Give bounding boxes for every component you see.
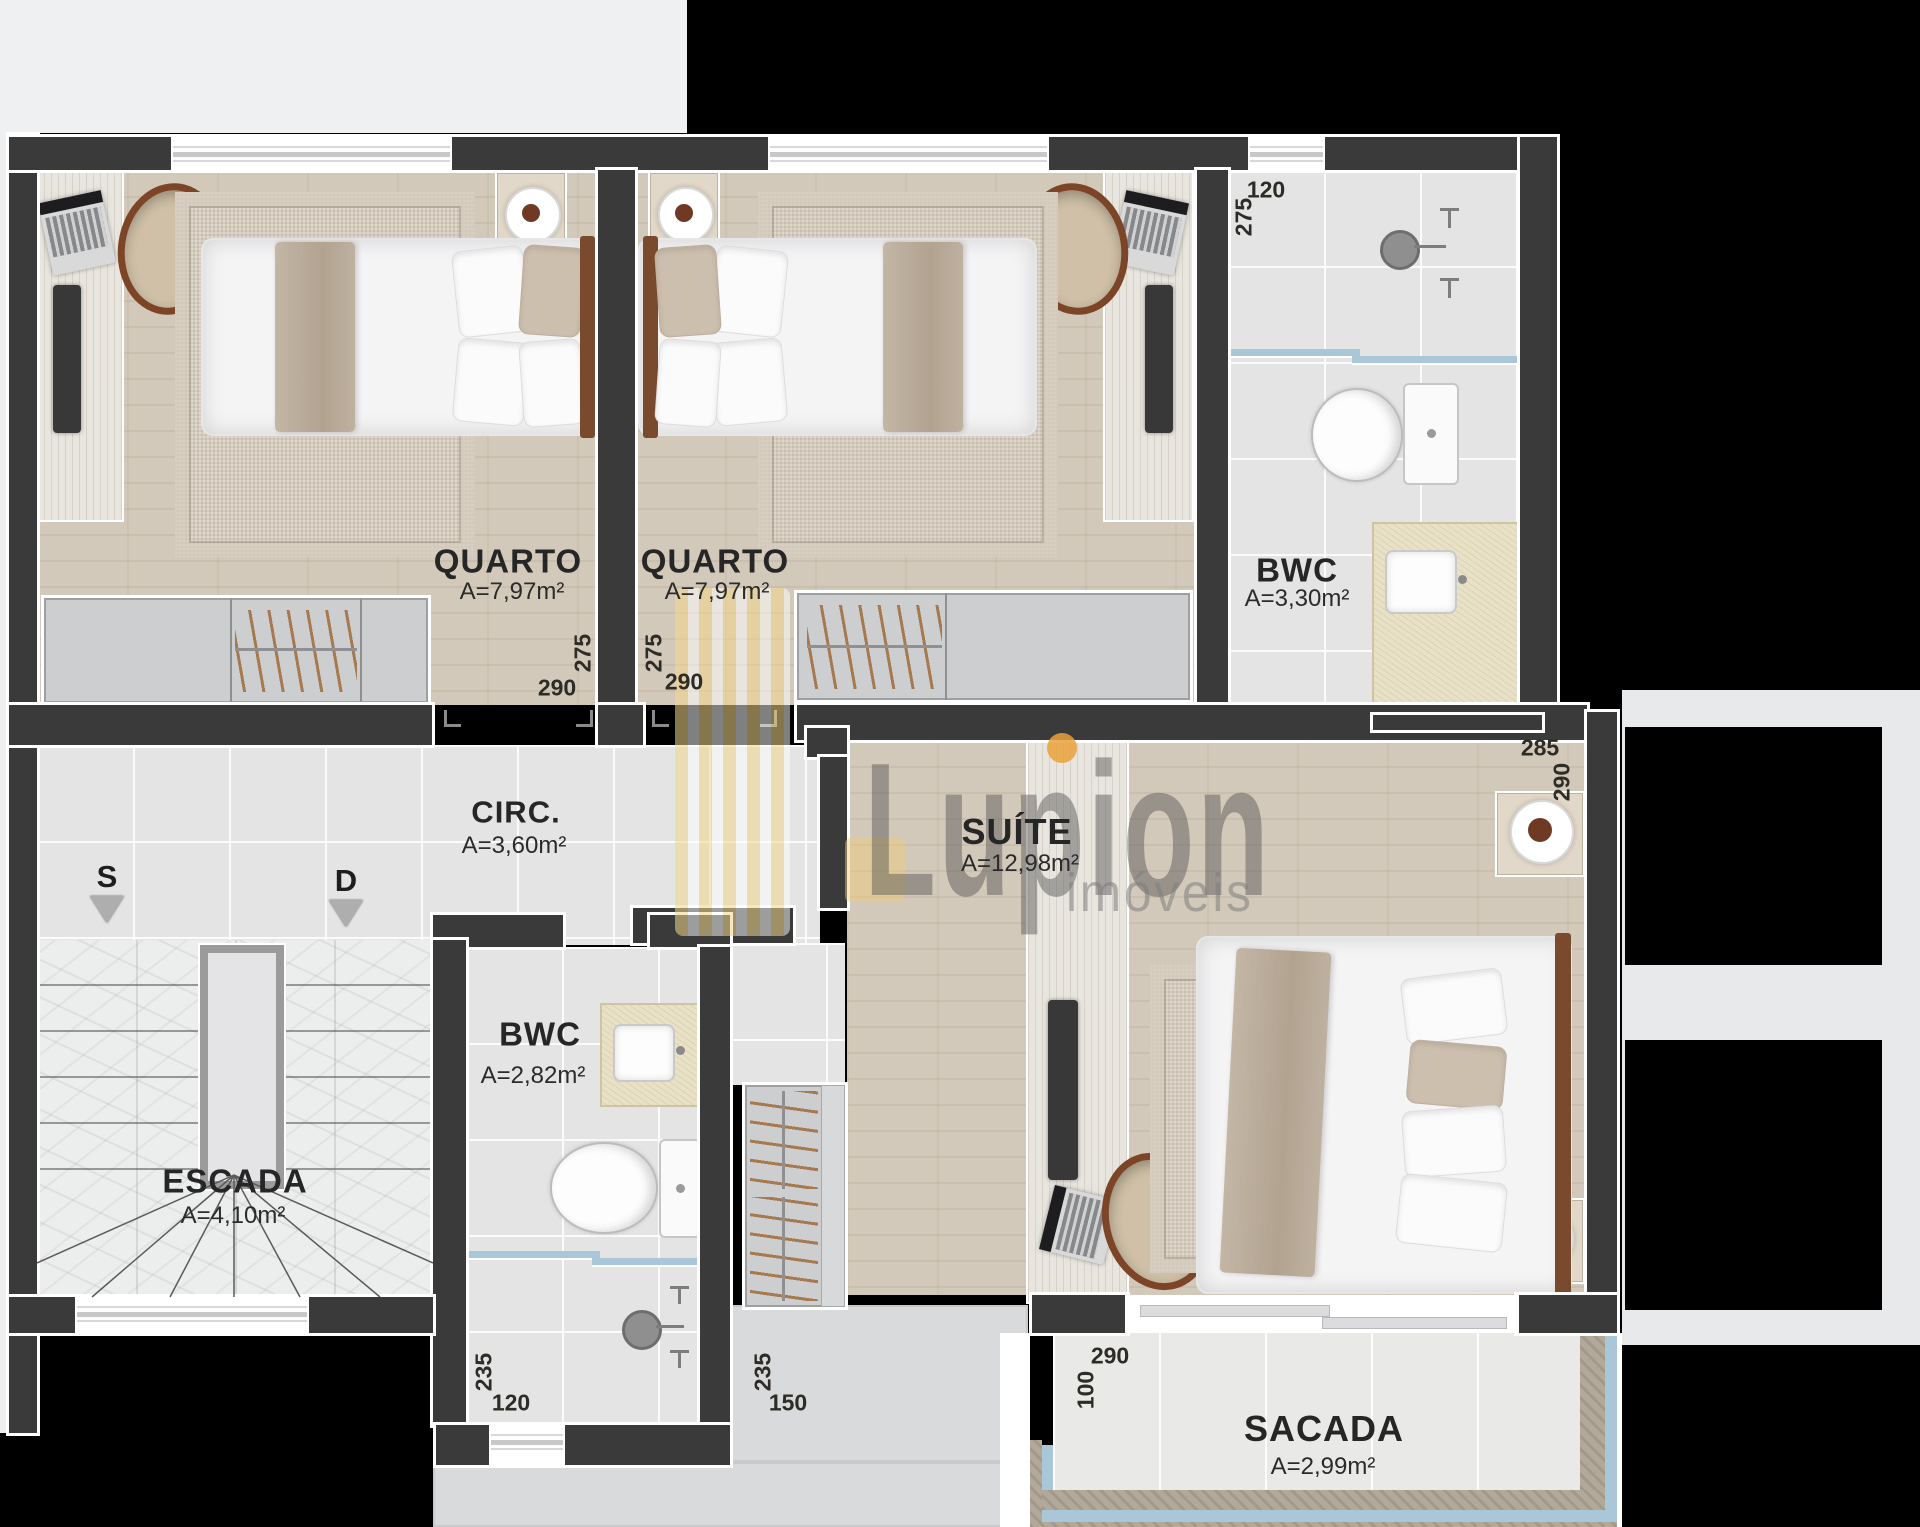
sacada-stone-left xyxy=(1030,1440,1042,1527)
pillow xyxy=(1405,1039,1507,1111)
closet-rod xyxy=(782,1091,785,1189)
stairs-label: ESCADA xyxy=(162,1165,307,1198)
suite-lamp-top-center xyxy=(1528,818,1552,842)
stairs-up-label: S xyxy=(97,859,118,895)
sacada-dim-width: 290 xyxy=(1091,1345,1129,1368)
closet-rod xyxy=(782,1197,785,1301)
wardrobe-hangers xyxy=(235,610,357,692)
wall-under-divider xyxy=(598,705,643,745)
pillow xyxy=(1399,967,1508,1046)
wall-under-quarto1 xyxy=(9,705,432,745)
bwc-top-toilet-bowl xyxy=(1311,388,1403,482)
sacada-stone-bottom-outer xyxy=(1042,1522,1617,1527)
sacada-glass-left xyxy=(1042,1445,1053,1490)
bwc-top-faucet xyxy=(1440,208,1459,211)
sliding-door-pane xyxy=(1140,1305,1330,1317)
closet-wardrobe xyxy=(745,1085,845,1307)
laptop-keyboard xyxy=(45,207,108,258)
pillow xyxy=(1401,1105,1507,1179)
bwc-lower-toilet-bowl xyxy=(550,1142,658,1234)
stairs-down-label: D xyxy=(335,863,357,899)
background-left-margin xyxy=(0,133,9,1433)
bwc-top-area: A=3,30m² xyxy=(1245,587,1350,611)
sacada-white-edge xyxy=(1617,1333,1622,1527)
bwc-top-sink-faucet xyxy=(1458,575,1467,584)
wardrobe-rod xyxy=(235,648,357,651)
quarto2-monitor xyxy=(1145,285,1173,433)
sacada-dim-depth: 100 xyxy=(1075,1371,1098,1409)
wall-suite-right xyxy=(1587,712,1617,1333)
sacada-area: A=2,99m² xyxy=(1271,1455,1376,1479)
sacada-stone-bottom xyxy=(1042,1490,1605,1510)
stairs-down-arrow xyxy=(329,900,363,927)
sacada-glass-bottom xyxy=(1042,1510,1605,1522)
bwc-top-shower-glass xyxy=(1228,349,1360,356)
sliding-door-pane xyxy=(1322,1317,1507,1329)
stairs-area: A=4,10m² xyxy=(181,1204,286,1228)
bwc-top-toilet-cistern xyxy=(1403,383,1459,485)
circulation-label: CIRC. xyxy=(471,797,560,828)
quarto1-label: QUARTO xyxy=(434,545,582,578)
quarto1-monitor xyxy=(53,285,81,433)
pillow xyxy=(518,244,586,338)
quarto2-dim-width: 290 xyxy=(665,671,703,694)
suite-monitor xyxy=(1048,1000,1078,1180)
quarto1-bed xyxy=(203,240,595,434)
bwc-top-faucet xyxy=(1448,210,1451,228)
door-frame xyxy=(576,710,593,727)
wardrobe-rod xyxy=(807,645,942,648)
wall-bwc-lower-right xyxy=(700,947,730,1425)
quarto2-blanket xyxy=(883,242,963,432)
cistern-button xyxy=(1427,429,1436,438)
quarto1-blanket xyxy=(275,242,355,432)
watermark-tagline: imóveis xyxy=(1066,866,1254,920)
bwc-lower-faucet xyxy=(678,1352,681,1368)
bwc-lower-sink-faucet xyxy=(676,1046,685,1055)
closet-floor xyxy=(730,943,845,1085)
cistern-button xyxy=(676,1184,685,1193)
floor-plan: QUARTO A=7,97m² 275 290 QUARTO A=7,97m² … xyxy=(0,0,1920,1527)
quarto1-wardrobe xyxy=(44,598,428,703)
sacada-glass-right xyxy=(1605,1333,1617,1527)
quarto2-area: A=7,97m² xyxy=(665,580,770,604)
quarto1-dim-depth: 275 xyxy=(572,634,595,672)
suite-dim-depth: 290 xyxy=(1551,763,1574,801)
wall-suite-left xyxy=(820,757,847,908)
sacada-white-strip-left xyxy=(1000,1333,1030,1527)
circulation-area: A=3,60m² xyxy=(462,834,567,858)
bwc-lower-label: BWC xyxy=(499,1018,581,1051)
quarto2-dim-depth: 275 xyxy=(643,634,666,672)
bwc-lower-toilet-cistern xyxy=(659,1139,701,1238)
quarto2-wardrobe xyxy=(797,593,1190,700)
wall-bwc-lower-bottom xyxy=(436,1425,730,1465)
suite-area: A=12,98m² xyxy=(961,852,1079,876)
quarto1-window xyxy=(173,139,450,168)
quarto1-lamp-center xyxy=(522,204,540,222)
bwc-lower-shower-glass xyxy=(468,1251,600,1258)
neighbor-interior-upper xyxy=(1625,727,1882,965)
background-top-left xyxy=(0,0,687,133)
wall-suite-bottom-right xyxy=(1517,1295,1617,1333)
bwc-lower-shower-head xyxy=(622,1310,662,1350)
sacada-label: SACADA xyxy=(1244,1411,1404,1447)
pillow xyxy=(518,338,586,428)
bwc-lower-shower-arm xyxy=(656,1325,684,1328)
bwc-top-shower-arm xyxy=(1414,245,1446,248)
bwc-top-shower-glass xyxy=(1352,356,1520,363)
suite-label: SUÍTE xyxy=(961,814,1072,850)
stairs-window xyxy=(77,1299,307,1331)
bwc-lower-shower-glass xyxy=(592,1258,700,1265)
closet-side-panel xyxy=(821,1085,845,1307)
bwc-top-faucet xyxy=(1440,278,1459,281)
suite-bwc-window-inset xyxy=(1370,712,1545,733)
bwc-lower-dim-depth: 235 xyxy=(473,1353,496,1391)
sacada-sliding-door xyxy=(1127,1297,1517,1331)
bwc-lower-sink xyxy=(613,1024,675,1082)
wall-outer-left xyxy=(9,135,37,1433)
bwc-lower-faucet xyxy=(670,1286,689,1289)
bwc-lower-door-threshold xyxy=(491,1427,563,1463)
stairs-void xyxy=(200,945,284,1189)
suite-dim-width: 285 xyxy=(1521,737,1559,760)
wall-bwc-lower-left xyxy=(433,940,466,1425)
quarto1-dim-width: 290 xyxy=(538,677,576,700)
neighbor-interior-lower xyxy=(1625,1040,1882,1310)
wall-suite-bottom-left xyxy=(1032,1295,1127,1333)
pillow xyxy=(654,244,722,338)
wardrobe-divider xyxy=(230,598,232,703)
bwc-top-label: BWC xyxy=(1256,554,1338,587)
wardrobe-divider xyxy=(945,593,947,700)
quarto2-window xyxy=(770,139,1047,168)
bwc-lower-faucet xyxy=(670,1350,689,1353)
quarto2-lamp-center xyxy=(675,204,693,222)
bwc-top-shower-head xyxy=(1380,230,1420,270)
quarto1-area: A=7,97m² xyxy=(460,580,565,604)
quarto2-bed xyxy=(640,240,1035,434)
bwc-top-window xyxy=(1250,139,1323,168)
wall-suite-left-jog xyxy=(807,728,847,757)
watermark-logo-stripes xyxy=(675,588,790,936)
watermark-i-dot xyxy=(1047,733,1077,763)
closet-dim-depth: 235 xyxy=(752,1353,775,1391)
wardrobe-divider xyxy=(360,598,362,703)
wall-outer-right-top xyxy=(1520,137,1557,712)
suite-bed xyxy=(1198,938,1570,1292)
door-frame xyxy=(444,710,461,727)
wall-quarto1-quarto2 xyxy=(598,170,635,745)
closet-dim-width: 150 xyxy=(769,1392,807,1415)
suite-blanket xyxy=(1220,948,1332,1278)
suite-headboard xyxy=(1555,933,1571,1297)
wall-quarto2-bwc xyxy=(1197,170,1228,705)
bwc-top-faucet xyxy=(1448,280,1451,298)
stairs-up-arrow xyxy=(90,896,124,923)
pillow xyxy=(1395,1173,1509,1254)
bwc-lower-area: A=2,82m² xyxy=(481,1064,586,1088)
quarto2-label: QUARTO xyxy=(641,545,789,578)
bwc-lower-faucet xyxy=(678,1288,681,1304)
outside-area-lower xyxy=(433,1462,1028,1527)
bwc-top-dim-depth: 275 xyxy=(1233,198,1256,236)
bwc-top-sink xyxy=(1385,550,1457,614)
pillow xyxy=(654,338,722,428)
quarto1-headboard xyxy=(580,236,595,438)
bwc-lower-dim-width: 120 xyxy=(492,1392,530,1415)
laptop-keyboard xyxy=(1055,1193,1108,1259)
door-frame xyxy=(652,710,669,727)
